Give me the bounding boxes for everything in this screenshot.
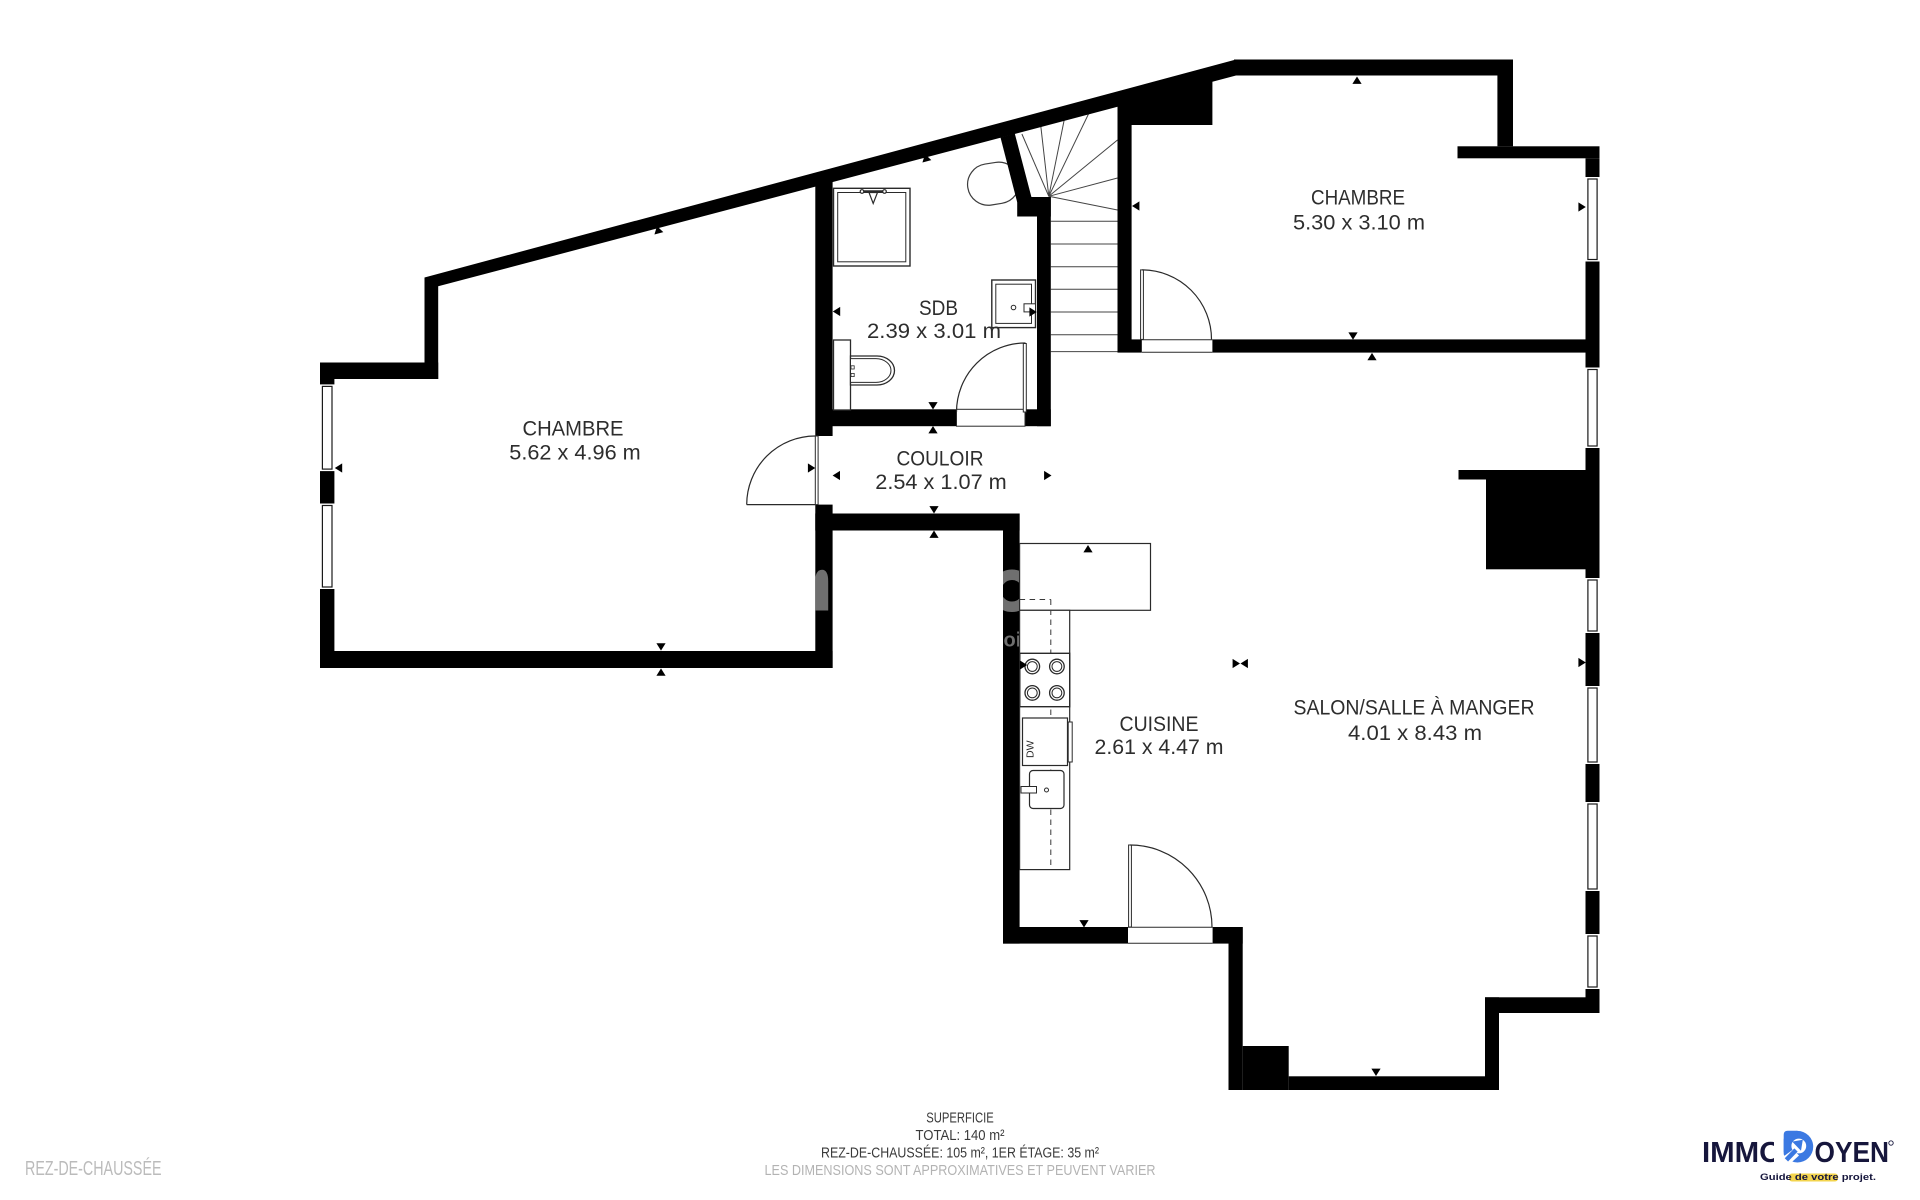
svg-text:REZ-DE-CHAUSSÉE: REZ-DE-CHAUSSÉE <box>25 1157 162 1180</box>
svg-text:IMMO: IMMO <box>1702 1137 1782 1169</box>
svg-text:LES DIMENSIONS SONT APPROXIMAT: LES DIMENSIONS SONT APPROXIMATIVES ET PE… <box>765 1162 1156 1179</box>
svg-text:2.54 x 1.07 m: 2.54 x 1.07 m <box>875 470 1007 494</box>
svg-text:2.61 x 4.47 m: 2.61 x 4.47 m <box>1095 735 1224 759</box>
svg-text:OYEN: OYEN <box>1815 1137 1890 1169</box>
svg-text:SALON/SALLE À MANGER: SALON/SALLE À MANGER <box>1294 695 1535 720</box>
svg-text:REZ-DE-CHAUSSÉE: 105 m², 1ER É: REZ-DE-CHAUSSÉE: 105 m², 1ER ÉTAGE: 35 m… <box>821 1145 1099 1162</box>
svg-text:oi: oi <box>1004 630 1022 652</box>
svg-text:SUPERFICIE: SUPERFICIE <box>926 1110 994 1127</box>
svg-text:5.30 x 3.10 m: 5.30 x 3.10 m <box>1293 211 1425 235</box>
svg-text:TOTAL: 140 m²: TOTAL: 140 m² <box>916 1127 1005 1144</box>
svg-text:5.62 x 4.96 m: 5.62 x 4.96 m <box>509 441 641 465</box>
svg-text:CHAMBRE: CHAMBRE <box>1311 186 1405 210</box>
svg-text:DW: DW <box>1025 740 1037 758</box>
svg-text:Guide de votre projet.: Guide de votre projet. <box>1760 1172 1876 1183</box>
svg-text:2.39 x 3.01 m: 2.39 x 3.01 m <box>867 319 1001 343</box>
svg-text:COULOIR: COULOIR <box>897 447 984 471</box>
svg-text:CHAMBRE: CHAMBRE <box>523 417 624 441</box>
svg-text:4.01 x 8.43 m: 4.01 x 8.43 m <box>1348 721 1482 745</box>
svg-text:SDB: SDB <box>919 296 958 320</box>
svg-text:CUISINE: CUISINE <box>1120 712 1199 736</box>
